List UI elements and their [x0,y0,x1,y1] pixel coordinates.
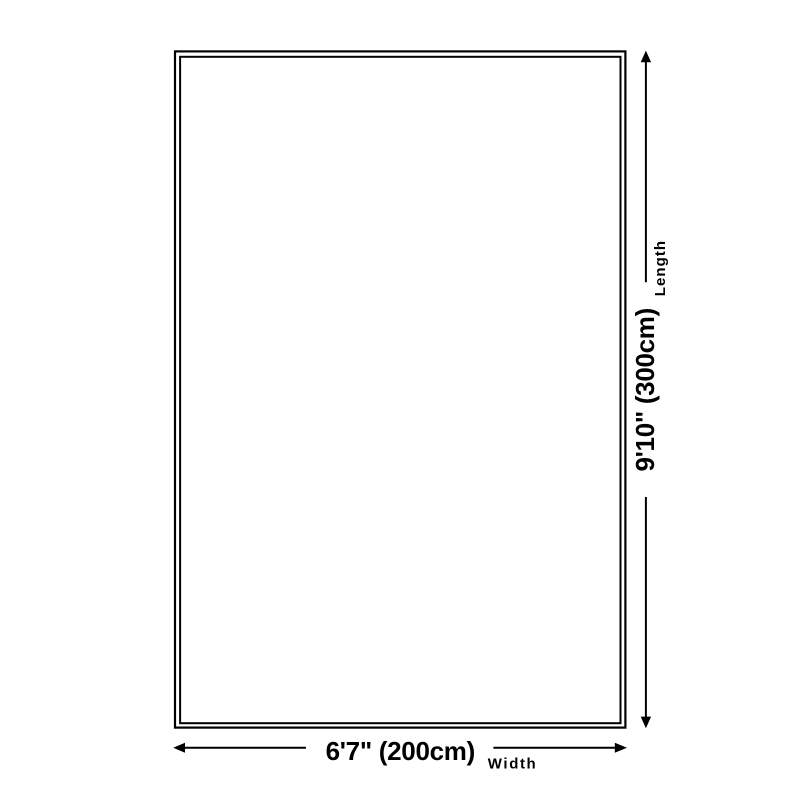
svg-text:Length: Length [652,240,669,296]
svg-text:6'7" (200cm): 6'7" (200cm) [326,736,475,766]
svg-text:9'10" (300cm): 9'10" (300cm) [630,308,660,472]
svg-text:Width: Width [488,756,538,773]
